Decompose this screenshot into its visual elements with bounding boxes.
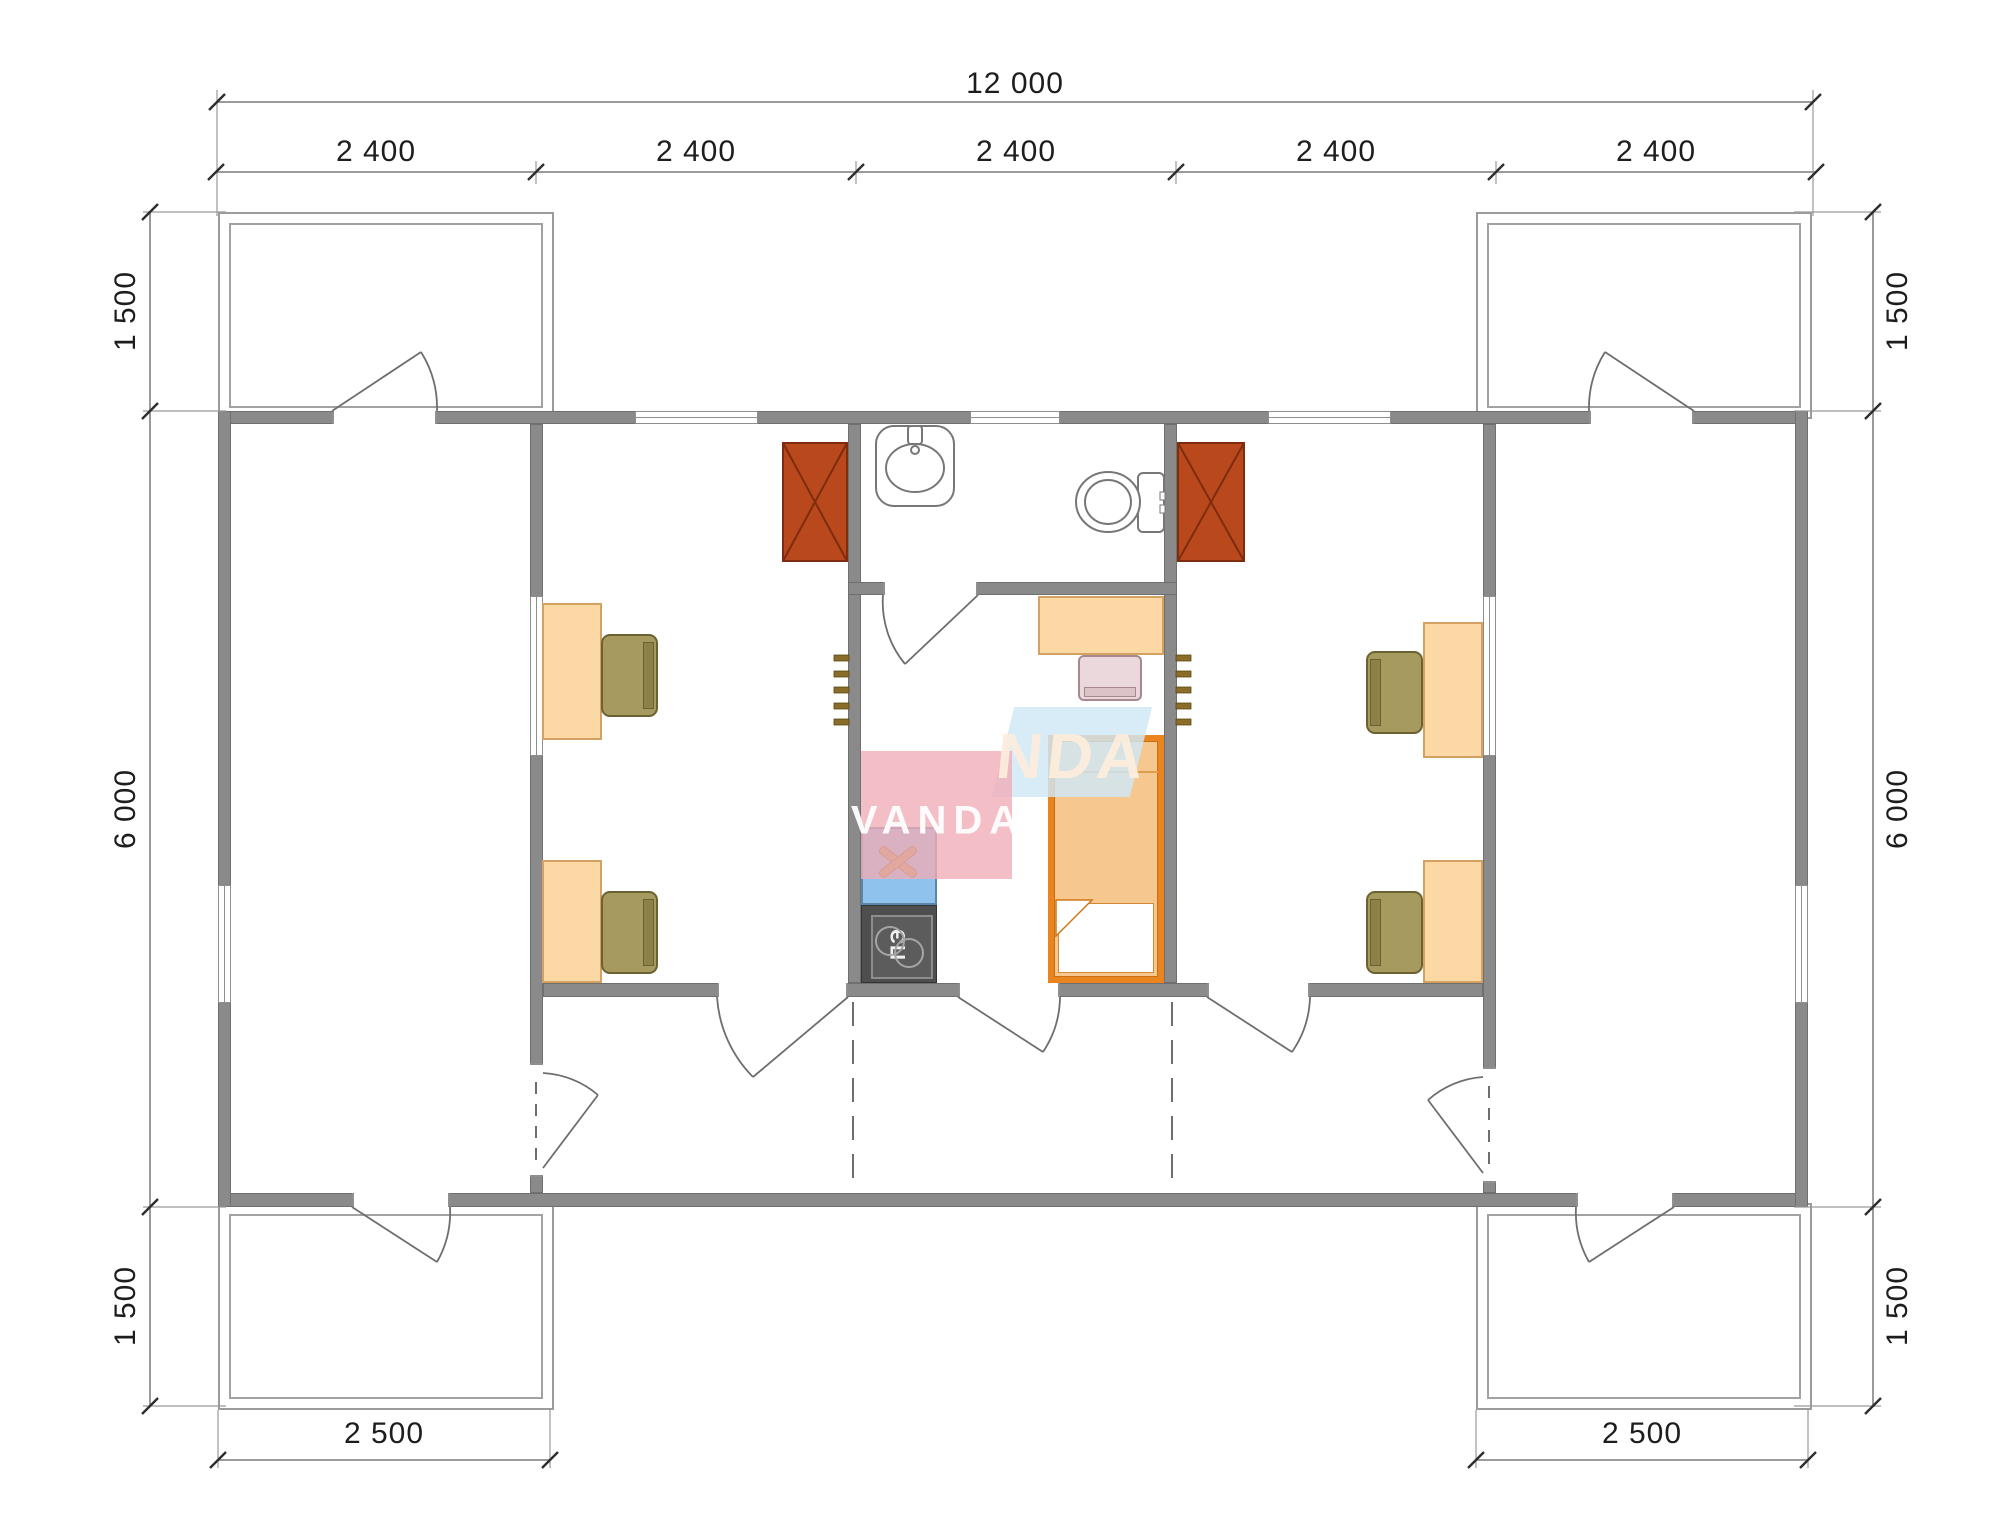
electric-stove-label: ПЭ bbox=[887, 928, 911, 960]
porch-top-right bbox=[1476, 212, 1812, 419]
window-right-room bbox=[1795, 885, 1808, 1003]
door-rightroom-hall bbox=[1428, 1077, 1483, 1173]
dim-bottom-right-porch: 2 500 bbox=[1602, 1417, 1682, 1451]
porch-top-right-inner bbox=[1487, 223, 1801, 408]
hall-dashed-lines bbox=[853, 1002, 1172, 1190]
door-opening-study-hall bbox=[717, 983, 848, 997]
porch-top-left bbox=[218, 212, 554, 419]
dim-right-bottom: 1 500 bbox=[1881, 1266, 1915, 1346]
electric-stove: ПЭ bbox=[861, 905, 937, 983]
desk-kitchen bbox=[1038, 596, 1164, 655]
window-interior-right bbox=[1483, 596, 1496, 756]
door-opening-rightroom-hall bbox=[1483, 1067, 1496, 1183]
dim-module-1: 2 400 bbox=[336, 135, 416, 169]
door-opening-porch-bottom-left bbox=[352, 1193, 450, 1207]
door-opening-porch-bottom-right bbox=[1576, 1193, 1674, 1207]
door-study-hall bbox=[717, 997, 848, 1077]
dim-left-top: 1 500 bbox=[109, 271, 143, 351]
door-kitchen-hall bbox=[958, 997, 1060, 1052]
chair-bedroom-upper bbox=[1366, 651, 1423, 734]
door-opening-porch-top-right bbox=[1589, 411, 1694, 424]
wall-bathroom-left bbox=[848, 424, 861, 983]
heater-stove-left bbox=[782, 442, 848, 562]
window-bedroom-top bbox=[1268, 411, 1391, 424]
wall-exterior-bottom bbox=[218, 1193, 1808, 1207]
window-bathroom-top bbox=[970, 411, 1060, 424]
dim-module-4: 2 400 bbox=[1296, 135, 1376, 169]
window-study-top bbox=[635, 411, 758, 424]
chair-kitchen bbox=[1078, 655, 1142, 701]
dim-right-top: 1 500 bbox=[1881, 271, 1915, 351]
heater-stove-right bbox=[1177, 442, 1245, 562]
porch-bottom-left-inner bbox=[229, 1214, 543, 1399]
door-opening-porch-top-left bbox=[332, 411, 437, 424]
dim-bottom-left-porch: 2 500 bbox=[344, 1417, 424, 1451]
porch-bottom-left bbox=[218, 1203, 554, 1410]
door-leftroom-hall bbox=[543, 1073, 598, 1168]
dim-left-bottom: 1 500 bbox=[109, 1266, 143, 1346]
dim-left-middle: 6 000 bbox=[109, 769, 143, 849]
dim-module-3: 2 400 bbox=[976, 135, 1056, 169]
door-opening-kitchen-hall bbox=[958, 983, 1060, 997]
wall-exterior-right bbox=[1795, 411, 1808, 1207]
door-opening-bedroom-hall bbox=[1207, 983, 1310, 997]
loft-ladder-left bbox=[834, 655, 849, 725]
porch-bottom-right-inner bbox=[1487, 1214, 1801, 1399]
watermark-brand-fragment: NDA bbox=[993, 719, 1151, 793]
floor-plan-canvas: ПЭ bbox=[0, 0, 2000, 1524]
desk-study-upper bbox=[542, 603, 602, 740]
door-opening-leftroom-hall bbox=[530, 1063, 543, 1177]
desk-bedroom-lower bbox=[1423, 860, 1483, 983]
chair-study-lower bbox=[601, 891, 658, 974]
porch-bottom-right bbox=[1476, 1203, 1812, 1410]
window-left-room bbox=[218, 885, 231, 1003]
desk-study-lower bbox=[542, 860, 602, 983]
chair-bedroom-lower bbox=[1366, 891, 1423, 974]
dim-right-middle: 6 000 bbox=[1881, 769, 1915, 849]
bathroom-sink bbox=[876, 426, 954, 506]
toilet bbox=[1076, 472, 1165, 532]
door-opening-bathroom bbox=[883, 582, 978, 595]
bed-pillow bbox=[1058, 903, 1154, 973]
wall-exterior-left bbox=[218, 411, 231, 1207]
loft-ladder-right bbox=[1176, 655, 1191, 725]
watermark-brand: VANDA bbox=[851, 799, 1025, 844]
chair-study-upper bbox=[601, 634, 658, 717]
dim-module-5: 2 400 bbox=[1616, 135, 1696, 169]
desk-bedroom-upper bbox=[1423, 622, 1483, 758]
door-bathroom bbox=[883, 595, 978, 664]
porch-top-left-inner bbox=[229, 223, 543, 408]
opening-dashed-lines bbox=[536, 1082, 1489, 1164]
dim-top-total: 12 000 bbox=[966, 67, 1064, 101]
dim-module-2: 2 400 bbox=[656, 135, 736, 169]
door-bedroom-hall bbox=[1207, 997, 1310, 1052]
wall-module3-4 bbox=[1164, 424, 1177, 983]
